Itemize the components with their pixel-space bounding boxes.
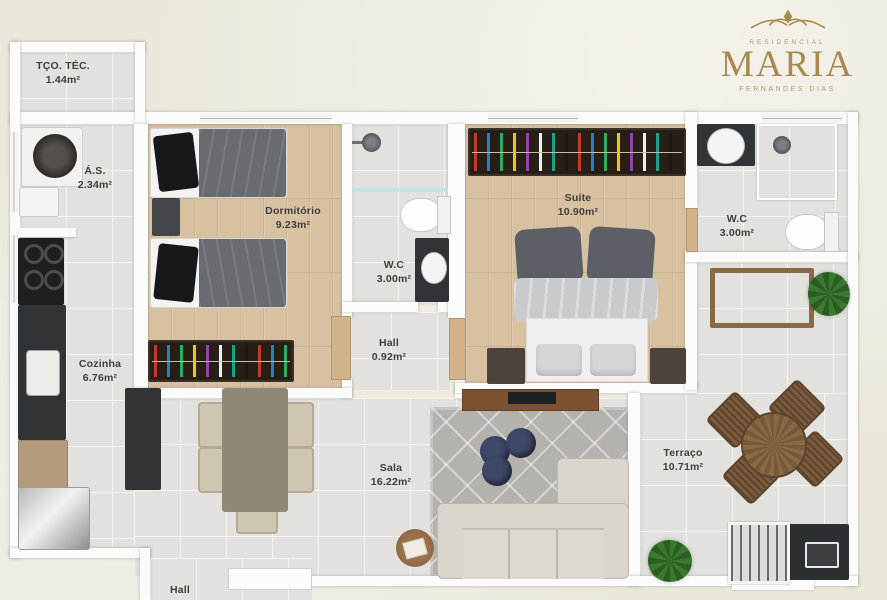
shower-stall — [757, 124, 837, 200]
toilet — [785, 214, 829, 250]
background: TÇO. TÉC. 1.44m² Á.S. 2.34m² Cozinha 6.7… — [0, 0, 887, 600]
terrace-bench — [710, 268, 814, 328]
sofa-seats — [462, 528, 604, 579]
wall — [140, 548, 150, 600]
room-label-as: Á.S. 2.34m² — [60, 165, 130, 192]
wall — [848, 112, 858, 586]
room-area: 6.76m² — [55, 372, 145, 386]
side-table — [396, 529, 434, 567]
nightstand — [650, 348, 686, 384]
room-label-wc-suite: W.C 3.00m² — [697, 213, 777, 240]
window — [488, 114, 578, 122]
toilet — [400, 198, 442, 232]
duvet — [199, 239, 286, 307]
room-label-dormitorio: Dormitório 9.23m² — [238, 205, 348, 232]
wall — [342, 302, 418, 312]
shower-head-icon — [773, 136, 791, 154]
room-name: Cozinha — [55, 358, 145, 372]
dining-table — [222, 388, 288, 512]
tv — [508, 392, 556, 404]
room-area: 3.00m² — [697, 227, 777, 241]
toilet-tank — [824, 212, 839, 252]
clothes-rail — [472, 152, 682, 153]
single-bed — [150, 128, 287, 198]
logo-brand-name: MARIA — [700, 46, 875, 83]
toilet-tank — [437, 196, 451, 234]
room-label-suite: Suíte 10.90m² — [528, 192, 628, 219]
double-bed — [514, 226, 658, 380]
duvet — [199, 129, 286, 197]
pillow — [536, 344, 582, 376]
room-name: Á.S. — [60, 165, 130, 179]
shower-glass — [352, 188, 448, 192]
burner-icon — [44, 270, 64, 290]
room-area: 10.71m² — [633, 461, 733, 475]
logo: RESIDENCIAL MARIA FERNANDES DIAS — [700, 8, 875, 93]
ornament-icon — [746, 8, 830, 32]
room-area: 16.22m² — [341, 476, 441, 490]
kitchen-island — [125, 388, 161, 490]
door-suite — [449, 318, 466, 380]
plant — [808, 272, 850, 316]
room-name: W.C — [354, 259, 434, 273]
duvet — [514, 278, 658, 322]
room-area: 0.92m² — [349, 351, 429, 365]
room-area: 10.90m² — [528, 206, 628, 220]
wall — [685, 252, 858, 262]
room-label-sala: Sala 16.22m² — [341, 462, 441, 489]
pillow — [590, 344, 636, 376]
logo-subtitle: FERNANDES DIAS — [700, 86, 875, 93]
clothes-rail — [152, 361, 290, 362]
wall — [134, 124, 148, 398]
window — [200, 114, 332, 122]
fridge — [18, 487, 90, 550]
shower-head-icon — [362, 133, 381, 152]
room-name: Suíte — [528, 192, 628, 206]
room-area: 1.44m² — [30, 74, 96, 88]
plant — [648, 540, 692, 582]
vanity-sink — [707, 128, 745, 164]
room-name: TÇO. TÉC. — [30, 60, 96, 74]
pillow — [153, 132, 200, 192]
book — [402, 537, 428, 559]
room-area: 9.23m² — [238, 219, 348, 233]
wall — [685, 250, 697, 390]
room-area: 3.00m² — [354, 273, 434, 287]
room-label-hall: Hall 0.92m² — [349, 337, 429, 364]
room-label-cozinha: Cozinha 6.76m² — [55, 358, 145, 385]
kitchen-cabinet — [18, 440, 68, 489]
room-label-tco-tec: TÇO. TÉC. 1.44m² — [30, 60, 96, 87]
room-name: W.C — [697, 213, 777, 227]
room-name: Sala — [341, 462, 441, 476]
wall — [685, 112, 697, 208]
room-name: Hall — [150, 584, 210, 598]
nightstand — [152, 198, 180, 236]
room-name: Hall — [349, 337, 429, 351]
wall — [10, 42, 145, 52]
pouf — [506, 428, 536, 458]
terrace-table — [741, 412, 807, 478]
grill-sink — [805, 542, 839, 568]
room-label-wc: W.C 3.00m² — [354, 259, 434, 286]
kitchen-shelf — [18, 228, 76, 237]
window — [10, 235, 18, 303]
room-area: 2.34m² — [60, 179, 130, 193]
entry-door — [228, 568, 312, 590]
burner-icon — [24, 270, 44, 290]
room-name: Dormitório — [238, 205, 348, 219]
door-dormitorio — [331, 316, 351, 380]
floor-plan: TÇO. TÉC. 1.44m² Á.S. 2.34m² Cozinha 6.7… — [0, 0, 887, 600]
wardrobe — [148, 340, 294, 382]
nightstand — [487, 348, 525, 384]
burner-icon — [44, 244, 64, 264]
room-name: Terraço — [633, 447, 733, 461]
burner-icon — [24, 244, 44, 264]
window — [10, 132, 18, 212]
wall — [628, 393, 640, 586]
laundry-tank — [19, 187, 59, 217]
room-label-hall-bottom: Hall — [150, 584, 210, 598]
pouf — [482, 456, 512, 486]
sofa — [437, 503, 629, 579]
wardrobe — [468, 128, 686, 176]
pillow — [153, 243, 199, 303]
room-label-terraco: Terraço 10.71m² — [633, 447, 733, 474]
window — [762, 114, 842, 122]
single-bed — [150, 238, 287, 308]
grill — [728, 522, 790, 584]
wall — [135, 42, 145, 124]
